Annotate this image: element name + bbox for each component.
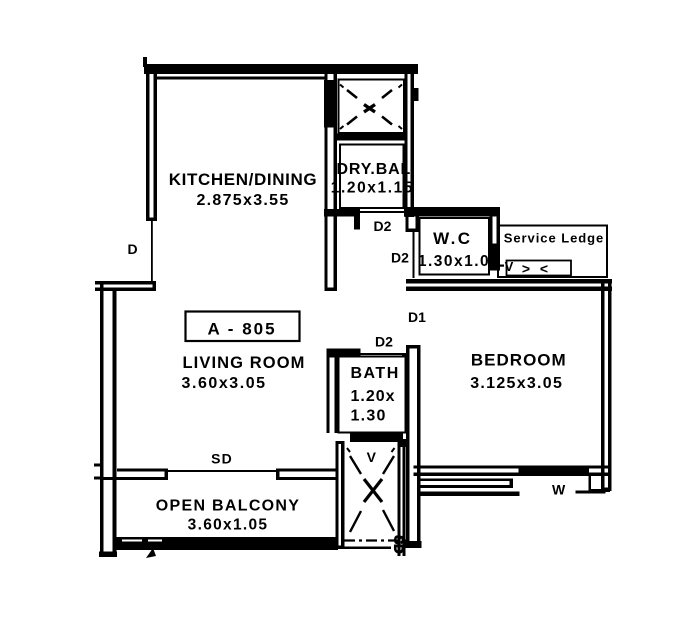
svg-text:W: W bbox=[552, 482, 566, 498]
svg-text:2.875x3.55: 2.875x3.55 bbox=[196, 192, 289, 209]
svg-text:LIVING ROOM: LIVING ROOM bbox=[183, 354, 306, 372]
svg-text:SD: SD bbox=[211, 451, 233, 467]
svg-text:3.60x3.05: 3.60x3.05 bbox=[182, 375, 267, 392]
svg-text:D2: D2 bbox=[374, 218, 392, 234]
svg-text:Service Ledge: Service Ledge bbox=[504, 231, 605, 246]
svg-text:D1: D1 bbox=[408, 309, 426, 325]
svg-text:OPEN BALCONY: OPEN BALCONY bbox=[156, 498, 301, 515]
svg-text:V: V bbox=[505, 259, 514, 274]
svg-text:KITCHEN/DINING: KITCHEN/DINING bbox=[169, 170, 318, 189]
svg-text:1.30x1.0: 1.30x1.0 bbox=[418, 253, 490, 270]
svg-text:1.20x: 1.20x bbox=[351, 388, 396, 405]
svg-text:1.20x1.15: 1.20x1.15 bbox=[331, 180, 414, 197]
svg-text:BATH: BATH bbox=[351, 365, 400, 382]
svg-text:V: V bbox=[367, 449, 377, 465]
svg-text:3.60x1.05: 3.60x1.05 bbox=[188, 517, 269, 534]
svg-text:DRY.BAL: DRY.BAL bbox=[337, 161, 412, 178]
svg-text:D2: D2 bbox=[391, 250, 409, 266]
svg-text:W.C: W.C bbox=[433, 229, 472, 248]
svg-text:A - 805: A - 805 bbox=[207, 320, 276, 339]
svg-text:3.125x3.05: 3.125x3.05 bbox=[470, 375, 563, 392]
svg-text:D: D bbox=[127, 241, 137, 257]
svg-text:D2: D2 bbox=[375, 334, 393, 350]
svg-text:SD: SD bbox=[392, 535, 407, 553]
svg-text:BEDROOM: BEDROOM bbox=[471, 351, 567, 370]
svg-text:>: > bbox=[522, 261, 530, 277]
svg-text:1.30: 1.30 bbox=[351, 408, 387, 425]
svg-text:<: < bbox=[540, 261, 548, 277]
